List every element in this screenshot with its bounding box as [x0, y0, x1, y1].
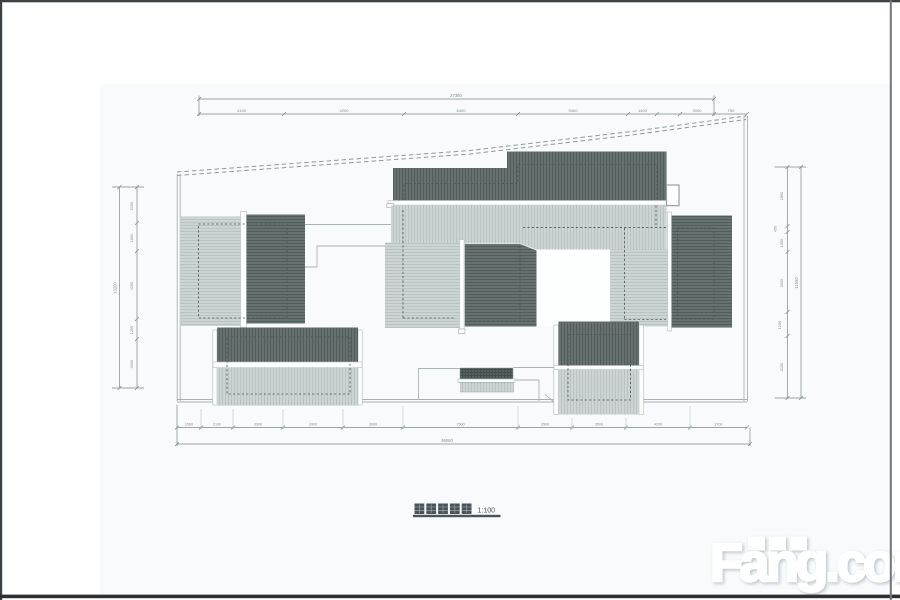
svg-text:3700: 3700 [714, 423, 722, 427]
svg-text:3900: 3900 [309, 423, 317, 427]
svg-text:450: 450 [773, 225, 778, 232]
svg-text:1200: 1200 [129, 325, 134, 334]
svg-text:4200: 4200 [129, 281, 134, 290]
svg-text:1560: 1560 [185, 423, 193, 427]
svg-text:1800: 1800 [129, 233, 134, 242]
svg-text:1200: 1200 [777, 320, 782, 329]
svg-text:1400: 1400 [638, 108, 648, 113]
svg-text:750: 750 [728, 108, 735, 113]
svg-text:2950: 2950 [779, 191, 784, 200]
svg-text:3000: 3000 [779, 278, 784, 287]
svg-text:4200: 4200 [654, 423, 662, 427]
svg-text:3000: 3000 [129, 359, 134, 368]
svg-text:36060: 36060 [441, 438, 453, 443]
svg-text:3500: 3500 [595, 423, 603, 427]
svg-text:2100: 2100 [213, 423, 221, 427]
svg-text:3100: 3100 [779, 362, 784, 371]
svg-text:3000: 3000 [693, 108, 703, 113]
svg-text:4140: 4140 [237, 108, 247, 113]
svg-text:11550: 11550 [794, 277, 799, 289]
svg-text:1:100: 1:100 [478, 508, 496, 515]
svg-text:3900: 3900 [369, 423, 377, 427]
svg-text:2100: 2100 [129, 201, 134, 210]
svg-text:4200: 4200 [340, 108, 350, 113]
svg-text:13200: 13200 [113, 282, 118, 294]
svg-text:9400: 9400 [569, 108, 579, 113]
svg-text:3300: 3300 [254, 423, 262, 427]
svg-text:1050: 1050 [779, 238, 784, 247]
svg-text:6400: 6400 [457, 108, 467, 113]
svg-text:7500: 7500 [456, 423, 464, 427]
svg-text:3500: 3500 [541, 423, 549, 427]
svg-text:27360: 27360 [450, 93, 462, 98]
